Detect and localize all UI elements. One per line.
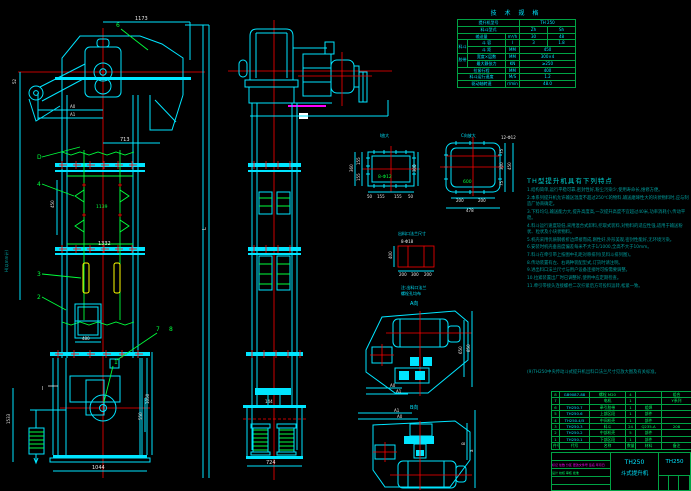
detail-i-left-total: 360 [349, 164, 354, 172]
bom-table: 8GB9087-88螺栓 M204组合 7电机1Y系列 6TH250.7牵引胶带… [551, 391, 691, 450]
flange-detail-b3: 200 [424, 272, 432, 277]
detail-i-bolts: 8-Φ12 [378, 174, 392, 180]
dim-144: 144 [265, 399, 273, 404]
axis-h-label: H(以mm计) [3, 250, 9, 272]
detail-c-title: C向放大 [461, 132, 476, 138]
tech-bucket-type-v1: Zh [520, 26, 548, 33]
tech-belt-width-label: 宽度×层数 [468, 53, 506, 60]
view-a-a1: A1 [396, 389, 402, 394]
tech-speed-value: 1.2 [520, 74, 576, 81]
flange-detail-title: 出料口法兰尺寸 [398, 230, 426, 236]
detail-i-b1: 155 [377, 194, 385, 199]
detail-c-b2: 200 [478, 198, 486, 203]
tech-rpm-unit: r/min [506, 81, 520, 88]
title-block-product: TH250 斗式提升机 [611, 453, 659, 490]
bom-header-note: 备注 [662, 443, 691, 449]
tech-capacity-v2: 48 [548, 33, 576, 40]
bom-code: GB9087-88 [560, 392, 590, 398]
detail-i-b2: 155 [394, 194, 402, 199]
tech-bucket-pitch-unit: MM [506, 47, 520, 54]
tech-speed-unit: M/S [506, 74, 520, 81]
title-block: 标记 处数 分区 更改文件号 签名 年月日 设计 校核 审核 批准 TH250 … [551, 452, 691, 491]
dim-52: 52 [12, 78, 17, 84]
dim-480: 480 [82, 336, 90, 341]
note-item: 4.料斗运行速度较低,采用混合式卸料,挖取式装料,对物料的适应性强,适用于输送粉… [527, 224, 689, 236]
dim-1533: 1533 [6, 413, 11, 424]
dim-1173: 1173 [135, 16, 148, 22]
note-item: 7.料斗在牵引带上按图中孔距对称排列(见料斗排列图)。 [527, 253, 689, 259]
notes-title: TH型提升机具有下列特点 [527, 178, 689, 184]
tech-belt-width-unit: MM [506, 53, 520, 60]
detail-c-r2: 300 [499, 162, 504, 170]
detail-c-bt: 478 [466, 208, 474, 213]
flange-detail-left: 400 [388, 251, 393, 259]
title-block-scale-cells [659, 475, 690, 490]
dim-713: 713 [120, 137, 130, 143]
dim-1044: 1044 [92, 465, 105, 471]
tech-capacity-label: 输送量 [458, 33, 506, 40]
title-block-sign-line: 设计 校核 审核 批准 [552, 469, 610, 477]
bom-header-no: 件号 [552, 443, 560, 449]
detail-c-bolts: 12-Φ12 [501, 135, 516, 140]
part-label-3: 3 [37, 271, 41, 278]
part-label-6: 6 [116, 22, 120, 29]
bom-header-code: 代号 [560, 443, 590, 449]
view-a-r2: 850 [466, 344, 471, 352]
title-block-product-name: 斗式提升机 [611, 469, 658, 477]
tech-group-belt: 胶带 [458, 53, 468, 67]
tech-belt-tension-value: ≥250 [520, 60, 576, 67]
head-top-view-b: B向 A1 A0 B a [358, 404, 475, 490]
note-item: 2.本系列提升机允许输送温度不超过250℃的物料,输送磨琢性大的块状物料时,应与… [527, 196, 689, 208]
flange-detail-b2: 300 [411, 272, 419, 277]
note-item: 6.安装时机壳垂直度偏差每米不大于1/1000,全高不大于10mm。 [527, 245, 689, 251]
tech-bucket-type-label: 料斗型式 [458, 26, 520, 33]
dim-450: 450 [50, 200, 55, 208]
tech-stroke-value: 400 [520, 67, 576, 74]
detail-c-rt: 450 [507, 162, 512, 170]
tech-spec-table: 技 术 规 格 提升机型号 TH 250 料斗型式 Zh Sh 输送量 m³/h… [457, 8, 575, 88]
note-item: 11.牵引带接头连接螺栓二次拧紧后方可投料运转,松紧一致。 [527, 284, 689, 290]
dim-550: 550 [138, 412, 143, 420]
detail-i-left2: 155 [356, 173, 361, 181]
dim-a1: A1 [70, 112, 76, 117]
note-item: 5.机壳采用优质钢板折边焊接而成,刚性好,外形美观,密封性能好,无环境污染。 [527, 238, 689, 244]
tech-bucket-vol-unit: l [506, 40, 520, 47]
tech-bucket-vol-v1: 3 [520, 40, 548, 47]
title-block-rev-line: 标记 处数 分区 更改文件号 签名 年月日 [552, 461, 610, 469]
tech-group-bucket: 料斗 [458, 40, 468, 54]
dim-L: L [202, 227, 208, 230]
part-label-7: 7 [156, 326, 160, 333]
bom-header-qty: 数量 [626, 443, 636, 449]
tech-belt-tension-unit: KN [506, 60, 520, 67]
dim-1332: 1332 [98, 241, 111, 247]
tech-model-value: TH 250 [520, 20, 576, 27]
note-item: 1.结构简单,运行平稳可靠,密封性好,粉尘污染少,使用寿命长,维修方便。 [527, 188, 689, 194]
tech-table-title: 技 术 规 格 [457, 8, 575, 17]
view-b-a1: A1 [394, 408, 400, 413]
tech-bucket-vol-label: 斗 容 [468, 40, 506, 47]
tech-bucket-pitch-label: 斗 距 [468, 47, 506, 54]
detail-c-r1: 75 [499, 148, 504, 154]
note-item: 9.进出料口法兰尺寸与用户设备连接时可按需要调整。 [527, 268, 689, 274]
notes-block: TH型提升机具有下列特点 1.结构简单,运行平稳可靠,密封性好,粉尘污染少,使用… [527, 178, 689, 292]
tech-model-label: 提升机型号 [458, 20, 520, 27]
flange-detail-note2: 螺栓孔均布 [401, 290, 421, 296]
title-block-revision-area: 标记 处数 分区 更改文件号 签名 年月日 设计 校核 审核 批准 [552, 453, 611, 490]
tech-bucket-type-v2: Sh [548, 26, 576, 33]
note-item: 8.传动装置有左、右两种装配型式,订货时请注明。 [527, 261, 689, 267]
dim-724: 724 [266, 460, 276, 466]
detail-i-flange: I放大 8-Φ12 155 155 360 300 50 155 155 50 [349, 132, 420, 199]
title-block-drawing-no-area: TH250 [659, 453, 690, 490]
tech-rpm-value: 48.0 [520, 81, 576, 88]
dim-a0: A0 [70, 104, 76, 109]
part-label-1: 1 [114, 359, 118, 366]
tech-speed-label: 料斗运行速度 [458, 74, 506, 81]
detail-i-left1: 155 [356, 157, 361, 165]
side-view: 724 144 [228, 20, 392, 480]
front-view: 1173 A0 A1 52 713 1139 450 1332 480 1044… [3, 16, 209, 478]
tech-capacity-unit: m³/h [506, 33, 520, 40]
bom-header-mat: 材料 [636, 443, 662, 449]
view-b-a0: A0 [397, 414, 403, 419]
part-label-4: 4 [37, 181, 41, 188]
title-block-model: TH250 [611, 459, 658, 466]
dim-1050: 1050 [145, 393, 150, 404]
part-label-2: 2 [37, 294, 41, 301]
flange-detail-bolts: 8-Φ18 [401, 239, 414, 244]
tech-capacity-v1: 30 [520, 33, 548, 40]
tech-bucket-pitch-value: 450 [520, 47, 576, 54]
view-a-title: A向 [410, 300, 418, 307]
flange-detail-note1: 注:出料口法兰 [401, 284, 426, 290]
detail-c-flange: C向放大 12-Φ12 600 75 300 75 450 200 200 47… [440, 132, 516, 213]
detail-c-inner: 600 [463, 179, 472, 185]
discharge-flange-detail: 出料口法兰尺寸 8-Φ18 400 200 300 200 注:出料口法兰 螺栓… [388, 230, 434, 296]
tech-belt-tension-label: 最大静张力 [468, 60, 506, 67]
part-label-d: D [37, 154, 42, 161]
detail-c-b1: 200 [456, 198, 464, 203]
bom-header-name: 名称 [590, 443, 626, 449]
note-item: 10.拉紧装置出厂时已调整好,使用中应定期检查。 [527, 276, 689, 282]
dim-1139: 1139 [96, 204, 108, 210]
title-block-drawing-no: TH250 [659, 459, 690, 465]
cad-drawing-page: { "front_view": { "dim_top": "1173", "di… [0, 0, 691, 491]
tech-rpm-label: 驱动轴转速 [458, 81, 506, 88]
tech-belt-width-value: 300×4 [520, 53, 576, 60]
detail-i-right: 300 [412, 164, 417, 172]
part-label-8: 8 [169, 326, 173, 333]
view-a-r1: 650 [458, 346, 463, 354]
view-b-r1: B [461, 442, 466, 445]
tech-bucket-vol-v2: 1.8 [548, 40, 576, 47]
flange-detail-b1: 200 [399, 272, 407, 277]
head-top-view-a: A向 A0 A1 650 850 [366, 300, 472, 396]
view-b-title: B向 [410, 404, 418, 411]
tech-stroke-label: 拉紧行程 [458, 67, 506, 74]
detail-i-b0: 50 [367, 194, 373, 199]
detail-c-r3: 75 [499, 180, 504, 186]
note-item: 3.下料均匀,输送能力大,提升高度高,一次提升高度不宜超过40米,功率消耗小,传… [527, 210, 689, 222]
section-i-label: I [42, 386, 43, 392]
notes-footnote: (9)TH250中央传动斗式提升机出料口法兰尺寸见放大图及有关标准。 [527, 369, 689, 375]
detail-i-title: I放大 [380, 132, 389, 138]
tech-stroke-unit: MM [506, 67, 520, 74]
detail-i-b3: 50 [408, 194, 414, 199]
view-a-a0: A0 [390, 383, 396, 388]
